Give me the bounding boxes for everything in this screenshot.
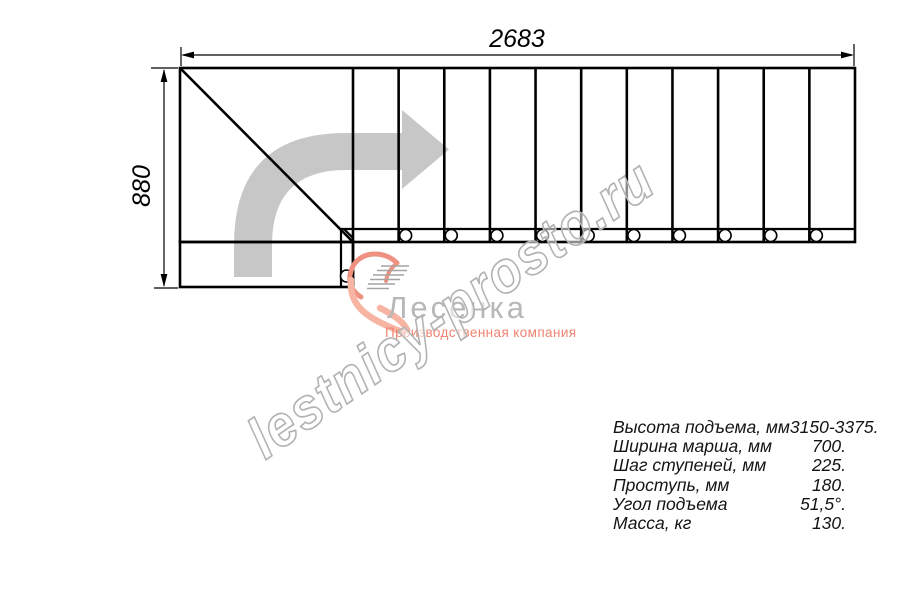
spec-row-step: Шаг ступеней, мм 225. xyxy=(613,456,846,475)
baluster-circle xyxy=(673,230,685,242)
spec-label: Высота подъема, мм xyxy=(613,418,790,437)
baluster-circle xyxy=(400,230,412,242)
watermark-text: lestnicy-prosto.ru xyxy=(236,147,667,471)
baluster-circle xyxy=(719,230,731,242)
dimension-top-label: 2683 xyxy=(488,25,545,53)
spec-label: Угол подъема xyxy=(613,495,728,514)
baluster-circle xyxy=(765,230,777,242)
spec-label: Шаг ступеней, мм xyxy=(613,456,766,475)
spec-row-width: Ширина марша, мм 700. xyxy=(613,437,846,456)
spec-table: Высота подъема, мм 3150-3375. Ширина мар… xyxy=(613,418,846,533)
dimension-top: 2683 xyxy=(181,25,854,66)
dimension-left-label: 880 xyxy=(128,165,156,207)
baluster-circle xyxy=(628,230,640,242)
baluster-circle xyxy=(445,230,457,242)
spec-value: 130. xyxy=(812,514,846,533)
spec-label: Проступь, мм xyxy=(613,476,729,495)
baluster-circle xyxy=(810,230,822,242)
dim-arrow-down xyxy=(161,274,168,287)
stair-drawing-page: 2683 880 xyxy=(0,0,900,600)
spec-label: Масса, кг xyxy=(613,514,691,533)
dim-arrow-up xyxy=(161,69,168,82)
spec-row-tread: Проступь, мм 180. xyxy=(613,476,846,495)
dimension-left: 880 xyxy=(128,68,178,288)
spec-row-height: Высота подъема, мм 3150-3375. xyxy=(613,418,846,437)
spec-row-mass: Масса, кг 130. xyxy=(613,514,846,533)
dim-arrow-right xyxy=(841,52,854,59)
dim-arrow-left xyxy=(181,52,194,59)
spec-value: 180. xyxy=(812,476,846,495)
spec-value: 225. xyxy=(812,456,846,475)
spec-value: 700. xyxy=(812,437,846,456)
spec-label: Ширина марша, мм xyxy=(613,437,772,456)
spec-value: 51,5°. xyxy=(800,495,846,514)
spec-value: 3150-3375. xyxy=(790,418,879,437)
spec-row-angle: Угол подъема 51,5°. xyxy=(613,495,846,514)
